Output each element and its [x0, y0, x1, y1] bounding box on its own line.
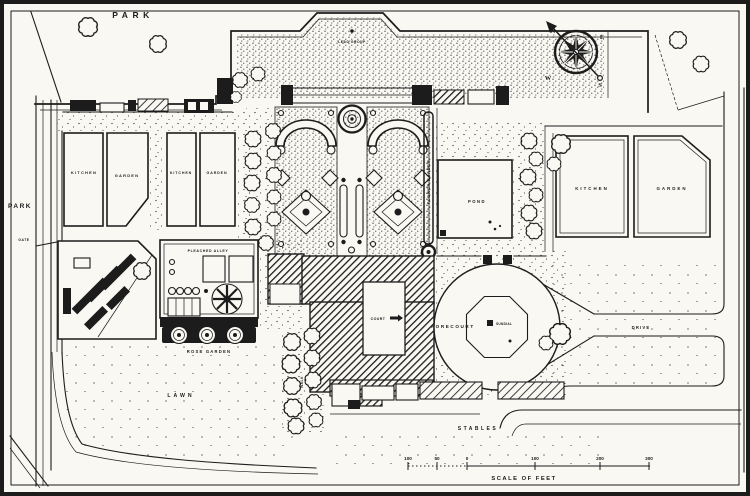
- label-pond: POND: [468, 199, 486, 204]
- glasshouses: [58, 241, 156, 339]
- scale-tick-100: 100: [531, 456, 539, 461]
- label-kitchen-west-inner-1: KITCHEN: [170, 171, 192, 175]
- label-sundial: SUNDIAL: [496, 322, 512, 326]
- pleached-alley-garden: [160, 240, 258, 327]
- label-kitchen-west-outer-1: KITCHEN: [71, 170, 97, 175]
- garden-tower: [217, 78, 233, 104]
- label-kitchen-east-1: KITCHEN: [575, 186, 609, 191]
- rose-bed: [171, 327, 244, 344]
- label-kitchen-west-inner-2: GARDEN: [207, 171, 228, 175]
- compass-s: S: [598, 82, 602, 89]
- label-lead-group: LEAD GROUP: [338, 40, 366, 44]
- sundial-base: [487, 320, 493, 326]
- label-kitchen-west-outer-2: GARDEN: [115, 173, 140, 178]
- gate-pier: [483, 255, 492, 264]
- scale-caption: SCALE OF FEET: [491, 476, 556, 482]
- scale-tick-100w: 100: [404, 456, 412, 461]
- label-pleached-alley-band: PLEACHED ALLEY: [190, 322, 229, 326]
- scale-tick-200: 200: [596, 456, 604, 461]
- label-flower-border: FLOWER BORDER: [427, 160, 431, 204]
- estate-garden-plan: N E W S 100 50 0 100 200 300 SCALE OF FE…: [0, 0, 750, 496]
- label-forecourt: FORECOURT: [431, 324, 475, 329]
- label-park-left: PARK: [8, 203, 32, 210]
- compass-e: E: [600, 34, 604, 41]
- gate-pier: [503, 255, 512, 264]
- label-rose-garden: ROSE GARDEN: [187, 349, 231, 354]
- fountain: [339, 106, 366, 133]
- label-drive: DRIVE: [632, 325, 651, 330]
- label-gate: GATE: [18, 238, 29, 242]
- rose-garden: [162, 327, 256, 344]
- scale-tick-50: 50: [434, 456, 440, 461]
- compass-w: W: [545, 75, 552, 82]
- label-stables: STABLES: [458, 426, 498, 432]
- label-pleached-alley-top: PLEACHED ALLEY: [188, 249, 229, 253]
- plan-drawing: N E W S 100 50 0 100 200 300 SCALE OF FE…: [0, 0, 750, 496]
- label-park-top: PARK: [112, 10, 153, 20]
- wheel-parterre: [212, 284, 242, 314]
- compass-n: N: [551, 28, 556, 35]
- label-kitchen-east-2: GARDEN: [656, 186, 687, 191]
- label-lawn: LAWN: [167, 393, 194, 399]
- label-court: COURT: [371, 317, 386, 321]
- scale-tick-0: 0: [466, 456, 469, 461]
- scale-tick-300: 300: [645, 456, 653, 461]
- label-walk: WALK: [300, 376, 304, 388]
- lead-group-statue: [350, 29, 354, 33]
